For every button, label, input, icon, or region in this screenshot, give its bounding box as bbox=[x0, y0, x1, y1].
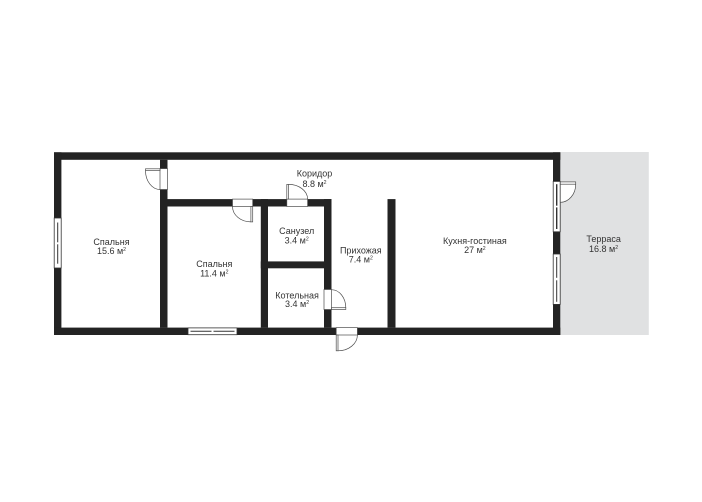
svg-text:15.6 м2: 15.6 м2 bbox=[97, 246, 126, 256]
svg-text:3.4 м2: 3.4 м2 bbox=[285, 235, 309, 245]
svg-text:Коридор: Коридор bbox=[297, 169, 333, 179]
svg-text:11.4 м2: 11.4 м2 bbox=[200, 268, 229, 278]
svg-text:16.8 м2: 16.8 м2 bbox=[589, 244, 618, 254]
svg-text:27 м2: 27 м2 bbox=[464, 245, 486, 255]
svg-text:7.4 м2: 7.4 м2 bbox=[349, 254, 373, 264]
svg-text:Терраса: Терраса bbox=[586, 234, 621, 244]
svg-text:8.8 м2: 8.8 м2 bbox=[302, 179, 326, 189]
svg-text:3.4 м2: 3.4 м2 bbox=[285, 299, 309, 309]
